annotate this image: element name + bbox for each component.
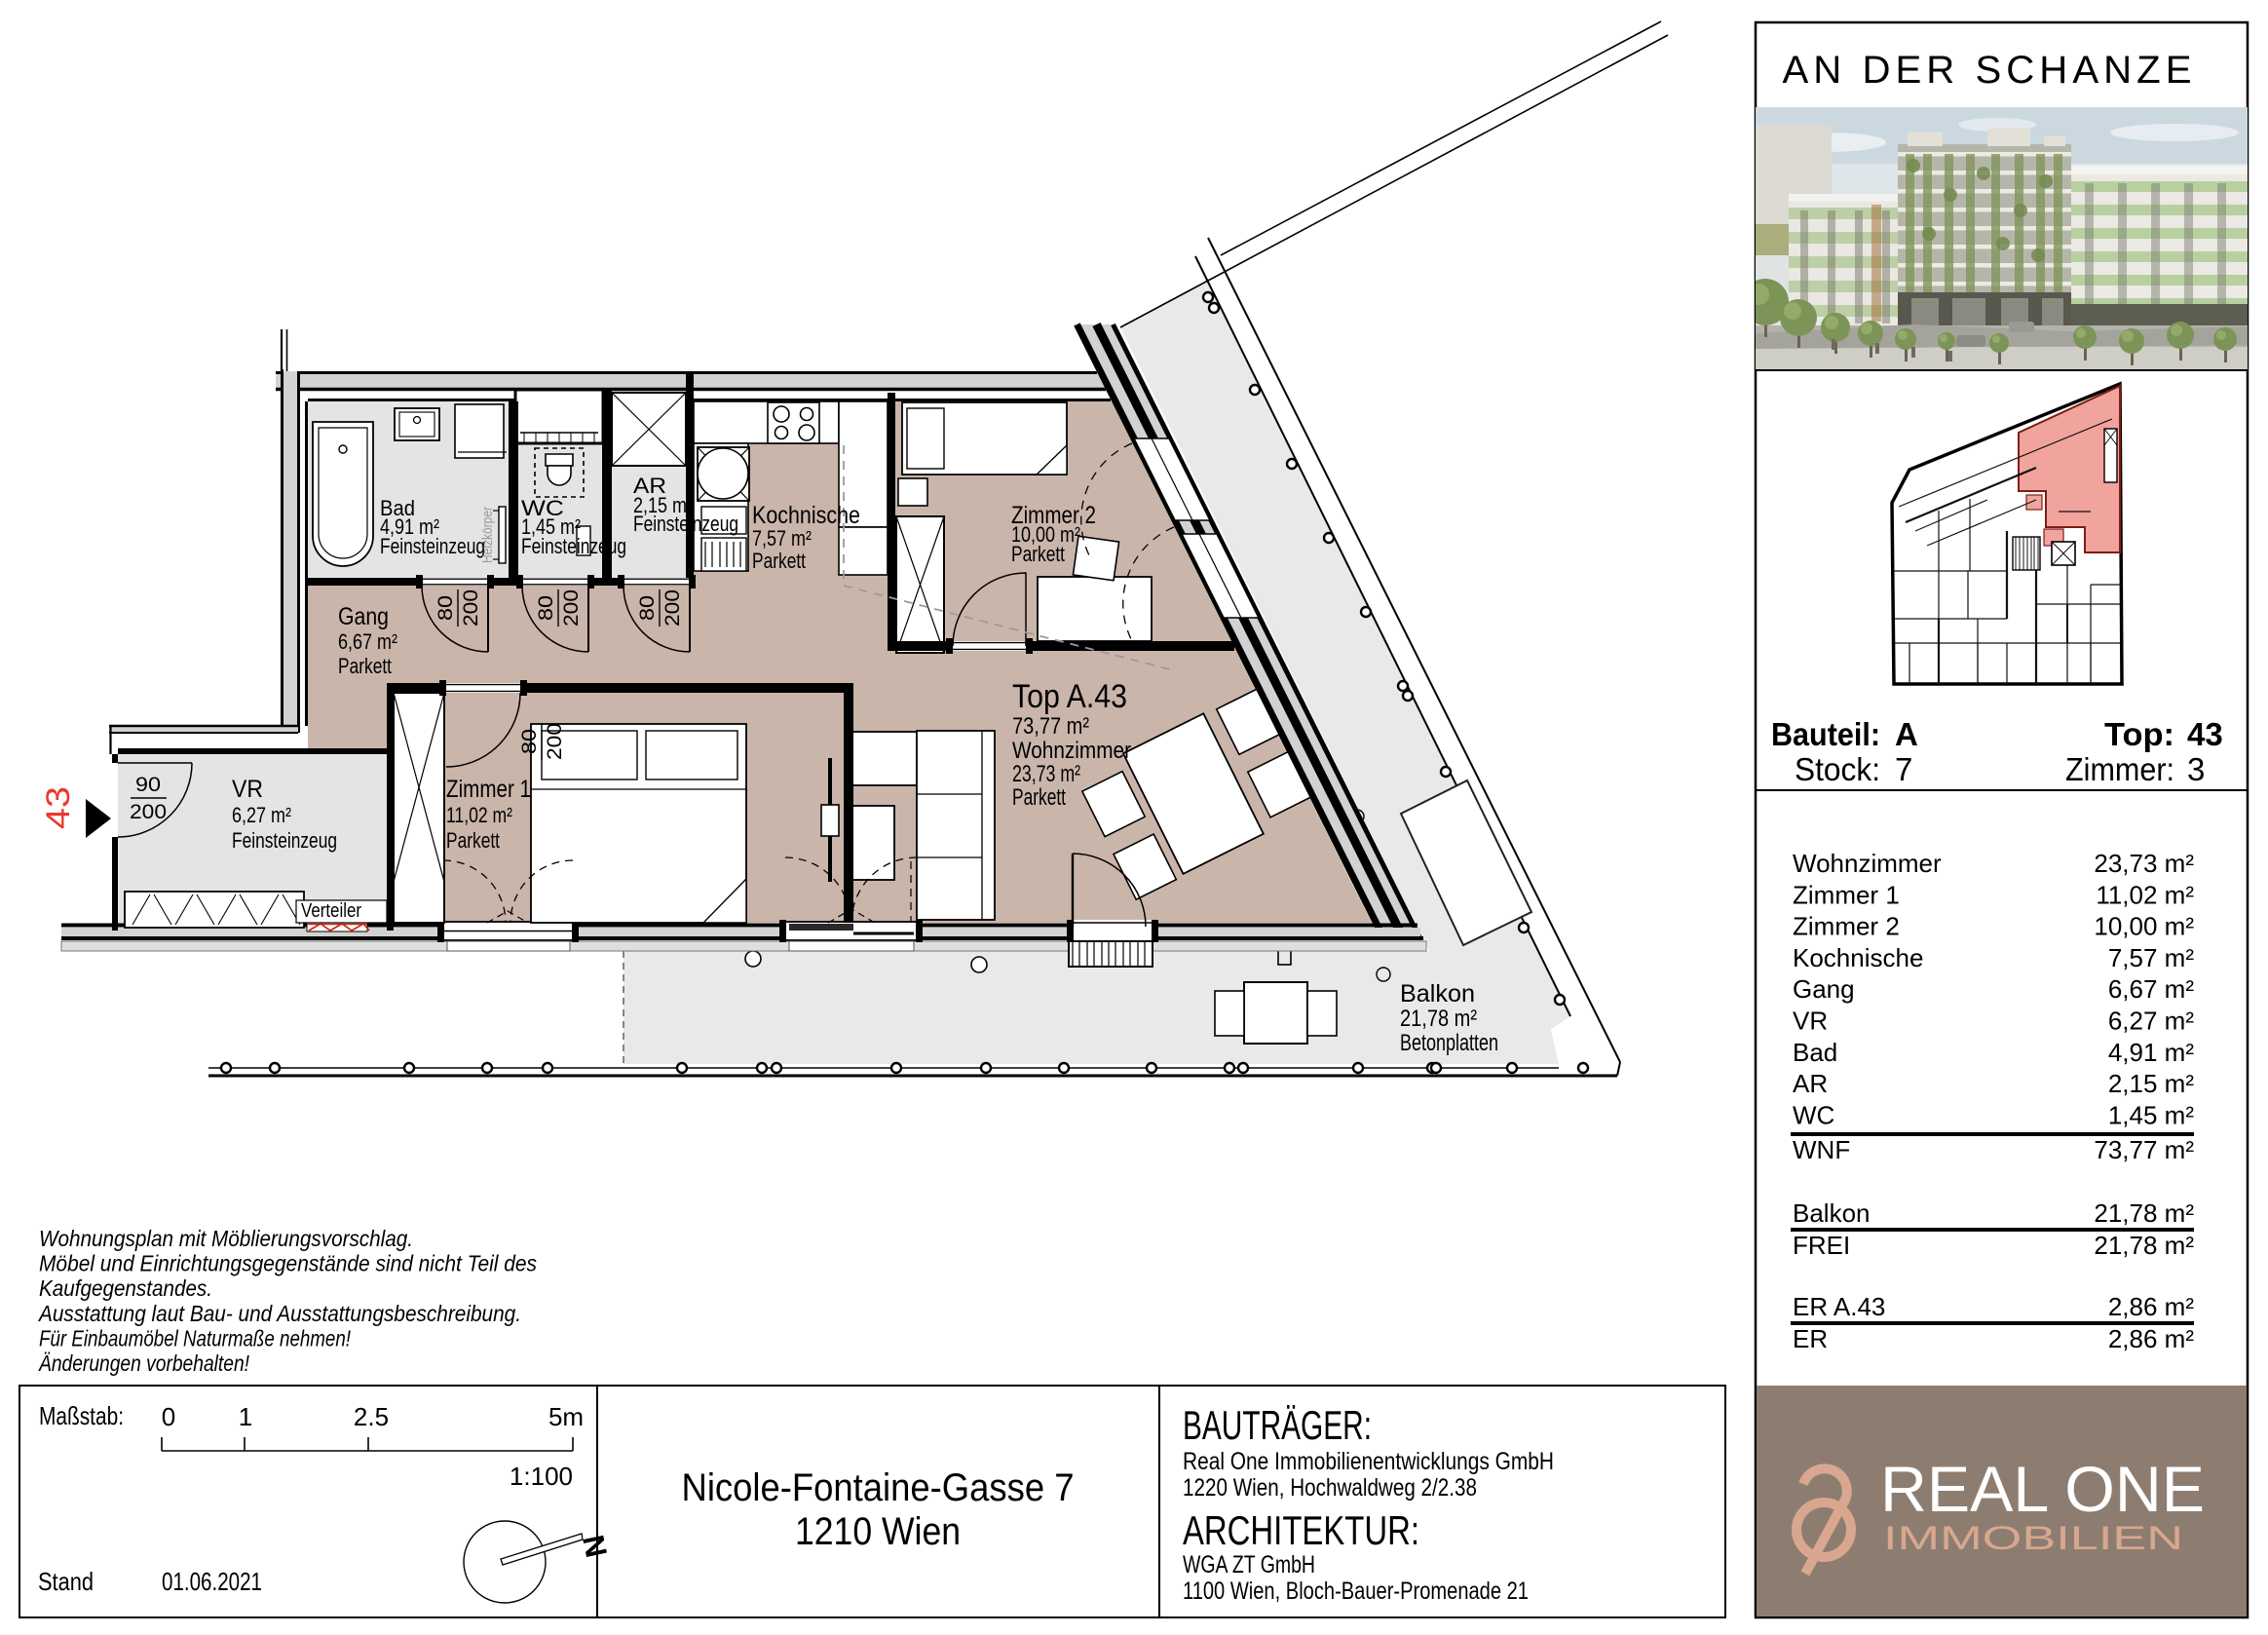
svg-text:7,57 m²: 7,57 m² <box>752 526 812 551</box>
svg-text:Kaufgegenstandes.: Kaufgegenstandes. <box>39 1275 212 1301</box>
svg-text:ER A.43: ER A.43 <box>1793 1292 1885 1321</box>
svg-text:Zimmer 1: Zimmer 1 <box>1793 880 1900 909</box>
svg-text:3: 3 <box>2187 751 2205 787</box>
svg-text:2.5: 2.5 <box>354 1402 389 1431</box>
svg-text:WNF: WNF <box>1793 1135 1850 1164</box>
svg-text:2,15 m²: 2,15 m² <box>2108 1069 2194 1098</box>
svg-text:1:100: 1:100 <box>510 1462 573 1491</box>
svg-text:1220 Wien, Hochwaldweg 2/2.38: 1220 Wien, Hochwaldweg 2/2.38 <box>1183 1474 1477 1502</box>
svg-text:Zimmer 2: Zimmer 2 <box>1793 912 1900 941</box>
svg-text:Kochnische: Kochnische <box>1793 943 1923 972</box>
svg-text:Gang: Gang <box>338 603 389 630</box>
svg-text:5m: 5m <box>548 1402 584 1431</box>
svg-text:80: 80 <box>636 595 659 621</box>
svg-text:Feinsteinzeug: Feinsteinzeug <box>380 534 485 558</box>
svg-text:Top A.43: Top A.43 <box>1012 678 1127 715</box>
svg-text:Maßstab:: Maßstab: <box>39 1401 124 1430</box>
svg-text:200: 200 <box>460 589 482 627</box>
svg-text:AR: AR <box>1793 1069 1828 1098</box>
svg-text:BAUTRÄGER:: BAUTRÄGER: <box>1183 1402 1372 1448</box>
svg-text:200: 200 <box>560 589 583 627</box>
svg-text:Kochnische: Kochnische <box>752 502 860 529</box>
svg-text:Feinsteinzeug: Feinsteinzeug <box>521 534 626 558</box>
svg-text:WC: WC <box>1793 1100 1834 1129</box>
svg-text:ARCHITEKTUR:: ARCHITEKTUR: <box>1183 1507 1419 1553</box>
svg-text:1: 1 <box>239 1402 252 1431</box>
svg-text:21,78 m²: 21,78 m² <box>2094 1231 2194 1260</box>
svg-text:43: 43 <box>2187 716 2223 752</box>
svg-text:Änderungen vorbehalten!: Änderungen vorbehalten! <box>38 1350 249 1376</box>
svg-text:21,78 m²: 21,78 m² <box>1400 1006 1477 1032</box>
svg-text:Feinsteinzeug: Feinsteinzeug <box>232 828 337 853</box>
svg-text:Parkett: Parkett <box>1012 784 1066 811</box>
svg-text:Stock:: Stock: <box>1795 751 1880 787</box>
svg-text:WGA ZT GmbH: WGA ZT GmbH <box>1183 1551 1315 1578</box>
svg-text:Feinsteinzeug: Feinsteinzeug <box>633 512 738 536</box>
svg-text:200: 200 <box>130 801 167 823</box>
svg-text:IMMOBILIEN: IMMOBILIEN <box>1883 1520 2183 1557</box>
svg-text:Stand: Stand <box>38 1567 94 1596</box>
svg-text:2,86 m²: 2,86 m² <box>2108 1324 2194 1353</box>
svg-text:80: 80 <box>435 595 457 621</box>
svg-text:A: A <box>1895 716 1918 752</box>
svg-text:73,77 m²: 73,77 m² <box>1012 713 1089 740</box>
svg-text:11,02 m²: 11,02 m² <box>446 803 512 827</box>
svg-text:VR: VR <box>232 776 263 803</box>
svg-text:Wohnzimmer: Wohnzimmer <box>1793 849 1942 878</box>
svg-text:73,77 m²: 73,77 m² <box>2094 1135 2194 1164</box>
svg-text:80: 80 <box>518 729 541 754</box>
svg-text:Heizkörper: Heizkörper <box>479 507 496 563</box>
svg-text:01.06.2021: 01.06.2021 <box>162 1567 262 1596</box>
svg-text:1100 Wien, Bloch-Bauer-Promena: 1100 Wien, Bloch-Bauer-Promenade 21 <box>1183 1578 1529 1605</box>
svg-text:7,57 m²: 7,57 m² <box>2108 943 2194 972</box>
svg-text:2,86 m²: 2,86 m² <box>2108 1292 2194 1321</box>
svg-text:Möbel und Einrichtungsgegenstä: Möbel und Einrichtungsgegenstände sind n… <box>39 1251 537 1276</box>
svg-text:Top:: Top: <box>2104 716 2174 752</box>
svg-text:10,00 m²: 10,00 m² <box>2094 912 2194 941</box>
svg-text:7: 7 <box>1895 751 1912 787</box>
svg-text:Zimmer:: Zimmer: <box>2065 751 2174 787</box>
svg-text:6,67 m²: 6,67 m² <box>338 629 397 654</box>
svg-text:Bauteil:: Bauteil: <box>1771 716 1880 752</box>
svg-text:VR: VR <box>1793 1007 1828 1036</box>
svg-text:Wohnzimmer: Wohnzimmer <box>1012 738 1131 764</box>
svg-text:Wohnungsplan mit Möblierungsvo: Wohnungsplan mit Möblierungsvorschlag. <box>39 1226 413 1251</box>
svg-text:200: 200 <box>661 589 684 627</box>
svg-text:Parkett: Parkett <box>446 828 500 853</box>
svg-text:Real One Immobilienentwicklung: Real One Immobilienentwicklungs GmbH <box>1183 1448 1554 1475</box>
svg-text:Ausstattung laut Bau- und Auss: Ausstattung laut Bau- und Ausstattungsbe… <box>37 1301 521 1326</box>
svg-text:6,67 m²: 6,67 m² <box>2108 974 2194 1004</box>
svg-text:90: 90 <box>135 774 161 796</box>
svg-text:Bad: Bad <box>1793 1038 1837 1067</box>
svg-text:Für Einbaumöbel Naturmaße nehm: Für Einbaumöbel Naturmaße nehmen! <box>39 1325 351 1350</box>
svg-text:6,27 m²: 6,27 m² <box>2108 1007 2194 1036</box>
svg-text:21,78 m²: 21,78 m² <box>2094 1198 2194 1228</box>
svg-text:FREI: FREI <box>1793 1231 1850 1260</box>
svg-text:0: 0 <box>162 1402 175 1431</box>
svg-text:ER: ER <box>1793 1324 1828 1353</box>
svg-text:6,27 m²: 6,27 m² <box>232 803 291 827</box>
svg-text:AN DER SCHANZE: AN DER SCHANZE <box>1783 49 2197 92</box>
svg-text:Balkon: Balkon <box>1400 980 1475 1008</box>
svg-text:11,02 m²: 11,02 m² <box>2096 880 2194 909</box>
svg-text:1,45 m²: 1,45 m² <box>2108 1100 2194 1129</box>
svg-text:Nicole-Fontaine-Gasse 7: Nicole-Fontaine-Gasse 7 <box>682 1466 1075 1509</box>
svg-text:Zimmer 1: Zimmer 1 <box>446 776 531 803</box>
svg-text:Parkett: Parkett <box>338 654 392 678</box>
svg-text:1210 Wien: 1210 Wien <box>795 1510 961 1553</box>
svg-text:23,73 m²: 23,73 m² <box>1012 761 1080 787</box>
svg-text:Balkon: Balkon <box>1793 1198 1871 1228</box>
svg-text:4,91 m²: 4,91 m² <box>2108 1038 2194 1067</box>
svg-text:43: 43 <box>40 786 77 829</box>
svg-text:23,73 m²: 23,73 m² <box>2094 849 2194 878</box>
svg-text:REAL ONE: REAL ONE <box>1880 1453 2205 1525</box>
svg-text:Parkett: Parkett <box>1011 542 1065 566</box>
svg-text:Gang: Gang <box>1793 974 1855 1004</box>
svg-text:80: 80 <box>535 595 557 621</box>
svg-text:Parkett: Parkett <box>752 549 806 573</box>
svg-text:200: 200 <box>544 723 566 760</box>
svg-text:Verteiler: Verteiler <box>301 900 361 922</box>
svg-text:Betonplatten: Betonplatten <box>1400 1030 1498 1056</box>
